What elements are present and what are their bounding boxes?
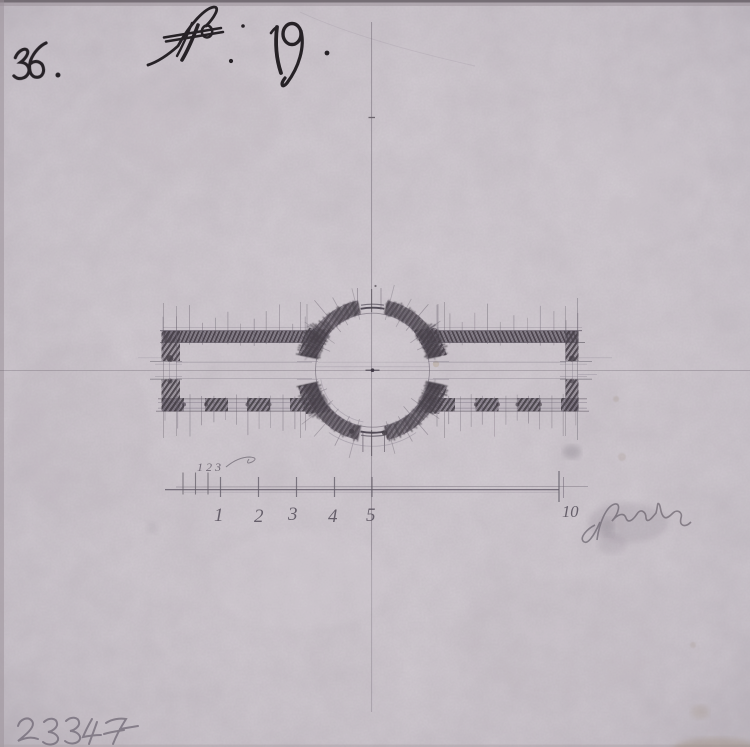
svg-text:10: 10 (562, 502, 579, 521)
svg-text:1: 1 (214, 505, 224, 526)
svg-text:2: 2 (254, 506, 264, 527)
svg-text:4: 4 (328, 506, 338, 527)
svg-text:1 2 3: 1 2 3 (197, 460, 221, 474)
svg-text:3: 3 (287, 504, 298, 525)
svg-text:5: 5 (366, 505, 376, 526)
